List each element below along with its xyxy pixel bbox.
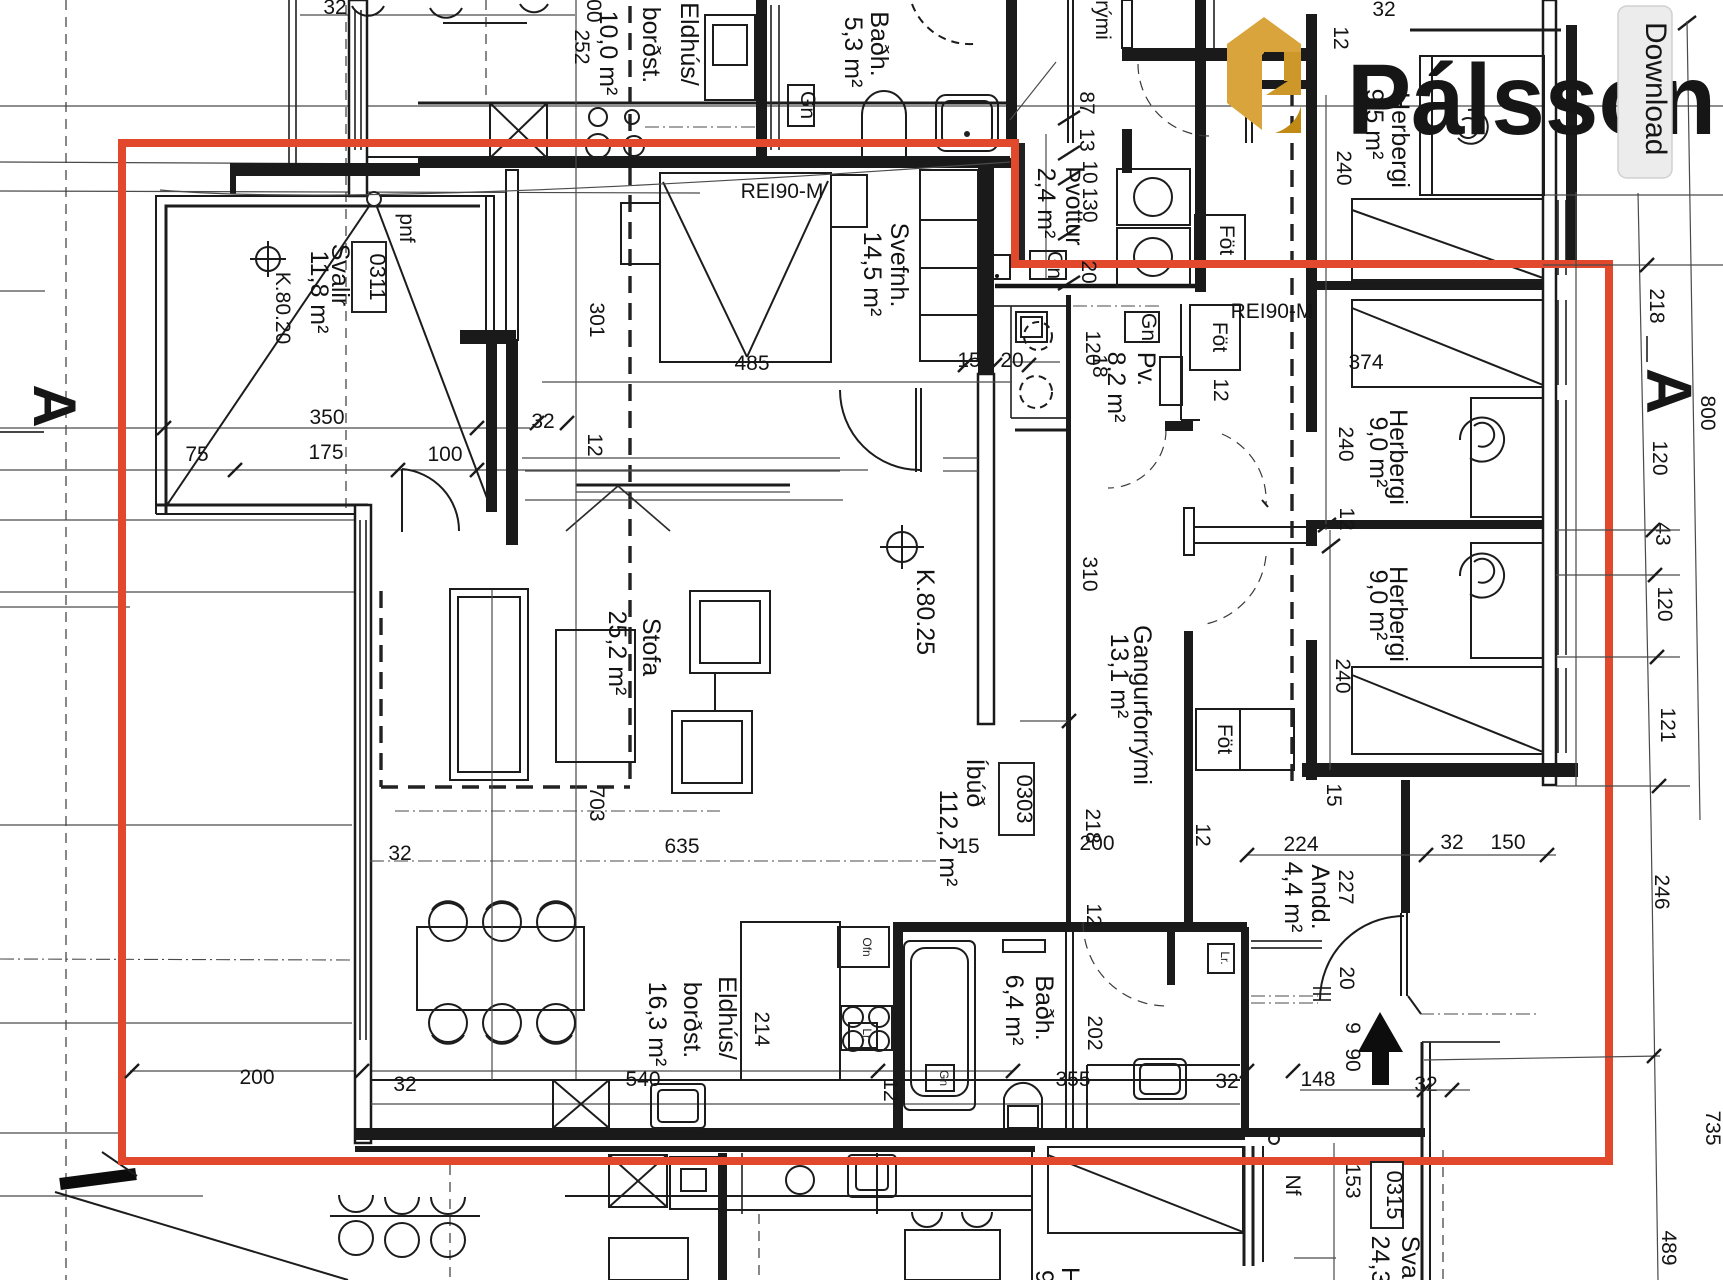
svg-text:Gn: Gn: [1137, 313, 1160, 341]
svg-text:9: 9: [1341, 1022, 1364, 1034]
svg-text:240: 240: [1334, 426, 1357, 461]
svg-text:Gn: Gn: [796, 91, 819, 119]
svg-text:borðst.: borðst.: [637, 7, 665, 83]
svg-text:25,2 m²: 25,2 m²: [603, 611, 631, 696]
svg-text:200: 200: [1079, 832, 1114, 855]
svg-text:Eldhús/: Eldhús/: [675, 2, 703, 85]
svg-text:borðst.: borðst.: [678, 982, 706, 1058]
svg-text:Nf: Nf: [1281, 1175, 1304, 1196]
svg-text:12: 12: [583, 433, 606, 456]
svg-text:120: 120: [1653, 586, 1676, 621]
svg-text:14,5 m²: 14,5 m²: [858, 232, 886, 317]
svg-text:121: 121: [1656, 707, 1679, 742]
svg-text:32: 32: [1372, 0, 1395, 21]
svg-text:15: 15: [956, 835, 979, 858]
svg-text:Gn: Gn: [937, 1070, 951, 1086]
svg-text:5,3 m²: 5,3 m²: [839, 17, 867, 88]
svg-text:148: 148: [1300, 1068, 1335, 1091]
svg-text:Eldhús/: Eldhús/: [713, 976, 741, 1059]
svg-text:Svefnh.: Svefnh.: [885, 223, 913, 308]
svg-text:20: 20: [1077, 260, 1100, 283]
svg-text:REI90-M: REI90-M: [1231, 300, 1314, 323]
svg-text:Download: Download: [1639, 22, 1672, 155]
svg-text:540: 540: [625, 1068, 660, 1091]
svg-text:202: 202: [1083, 1015, 1106, 1050]
svg-text:90: 90: [1341, 1048, 1364, 1071]
svg-text:Föt: Föt: [1208, 322, 1231, 353]
svg-text:9,0 m²: 9,0 m²: [1364, 570, 1392, 641]
svg-text:301: 301: [585, 302, 608, 337]
svg-text:489: 489: [1657, 1230, 1680, 1265]
svg-text:Baðh.: Baðh.: [1030, 975, 1058, 1040]
svg-text:100: 100: [427, 443, 462, 466]
svg-text:13,1 m²: 13,1 m²: [1105, 634, 1133, 719]
svg-text:252: 252: [570, 29, 593, 64]
svg-text:K.80.25: K.80.25: [911, 569, 939, 655]
svg-text:485: 485: [734, 352, 769, 375]
svg-text:32: 32: [1215, 1070, 1238, 1093]
svg-text:75: 75: [185, 443, 208, 466]
svg-text:6,4 m²: 6,4 m²: [1000, 975, 1028, 1046]
svg-text:218: 218: [1645, 288, 1668, 323]
svg-text:0303: 0303: [1012, 775, 1037, 824]
svg-text:Andd.: Andd.: [1306, 864, 1334, 929]
svg-text:12: 12: [1191, 823, 1214, 846]
svg-text:20: 20: [1000, 349, 1023, 372]
svg-text:130: 130: [1078, 187, 1101, 222]
svg-text:Íbúð: Íbúð: [961, 759, 990, 808]
svg-text:rými: rými: [1091, 0, 1114, 40]
svg-text:32: 32: [1414, 1073, 1437, 1096]
svg-text:120: 120: [1648, 440, 1671, 475]
svg-text:32: 32: [1440, 831, 1463, 854]
svg-text:H: H: [1056, 1267, 1084, 1280]
svg-text:246: 246: [1650, 874, 1673, 909]
svg-text:Pv.: Pv.: [1132, 352, 1160, 386]
svg-text:9: 9: [1030, 1270, 1058, 1280]
svg-text:A: A: [1633, 368, 1705, 414]
svg-text:pnf: pnf: [395, 213, 418, 242]
svg-text:153: 153: [1341, 1163, 1364, 1198]
svg-text:Sval: Sval: [1396, 1236, 1424, 1280]
svg-text:224: 224: [1283, 833, 1318, 856]
svg-text:Ofn: Ofn: [860, 937, 874, 956]
svg-text:9,0 m²: 9,0 m²: [1364, 417, 1392, 488]
svg-text:12: 12: [1209, 378, 1232, 401]
svg-text:12: 12: [1335, 507, 1358, 530]
svg-text:227: 227: [1334, 869, 1357, 904]
svg-text:735: 735: [1701, 1110, 1723, 1145]
svg-text:20: 20: [1335, 966, 1358, 989]
svg-text:4,4 m²: 4,4 m²: [1279, 862, 1307, 933]
svg-text:310: 310: [1078, 556, 1101, 591]
svg-text:175: 175: [308, 441, 343, 464]
svg-text:18: 18: [1088, 354, 1111, 377]
svg-text:0315: 0315: [1382, 1171, 1407, 1220]
svg-text:10,0 m²: 10,0 m²: [594, 11, 622, 96]
svg-text:24,3: 24,3: [1366, 1236, 1394, 1280]
svg-text:703: 703: [585, 786, 608, 821]
svg-text:15: 15: [1322, 783, 1345, 806]
svg-text:32: 32: [388, 842, 411, 865]
svg-text:355: 355: [1055, 1068, 1090, 1091]
svg-text:200: 200: [239, 1066, 274, 1089]
svg-text:374: 374: [1348, 351, 1383, 374]
svg-text:Föt: Föt: [1213, 724, 1236, 755]
svg-text:32: 32: [393, 1073, 416, 1096]
svg-text:Baðh.: Baðh.: [865, 11, 893, 76]
svg-text:0311: 0311: [365, 253, 390, 300]
svg-text:Stofa: Stofa: [637, 618, 665, 676]
svg-text:13: 13: [1075, 128, 1098, 151]
svg-text:16,3 m²: 16,3 m²: [643, 982, 671, 1067]
svg-text:150: 150: [1490, 831, 1525, 854]
svg-text:A: A: [21, 384, 88, 427]
svg-text:800: 800: [1696, 395, 1719, 430]
svg-text:Lr.: Lr.: [1218, 951, 1232, 964]
svg-text:2,4 m²: 2,4 m²: [1032, 168, 1060, 239]
svg-text:400: 400: [582, 0, 605, 23]
svg-text:12: 12: [879, 1078, 902, 1101]
svg-text:214: 214: [750, 1011, 773, 1046]
svg-text:11,8 m²: 11,8 m²: [305, 251, 333, 334]
svg-text:REI90-M: REI90-M: [741, 180, 824, 203]
svg-text:87: 87: [1075, 91, 1098, 114]
svg-text:635: 635: [664, 835, 699, 858]
svg-text:12: 12: [1082, 903, 1105, 926]
svg-text:Lr.: Lr.: [860, 1028, 874, 1041]
svg-text:350: 350: [309, 406, 344, 429]
svg-text:43: 43: [1651, 522, 1674, 545]
svg-text:10: 10: [1078, 160, 1101, 183]
svg-text:32: 32: [323, 0, 346, 19]
svg-text:32: 32: [531, 410, 554, 433]
svg-text:Föt: Föt: [1215, 225, 1238, 256]
svg-text:240: 240: [1331, 658, 1354, 693]
svg-text:K.80.20: K.80.20: [271, 272, 294, 344]
